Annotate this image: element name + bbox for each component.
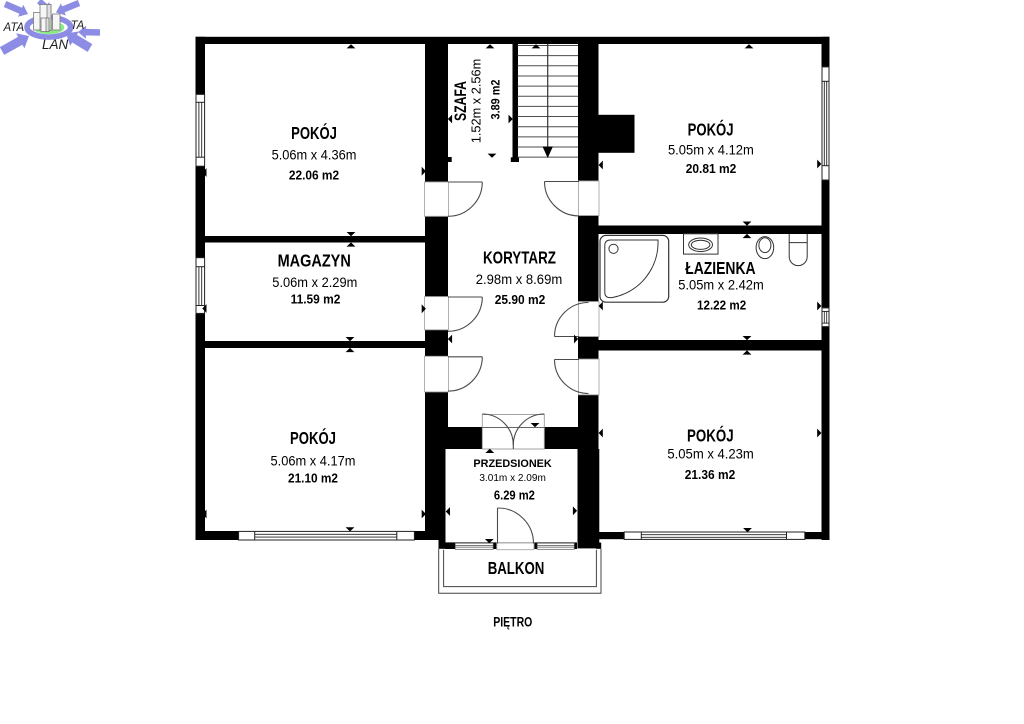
svg-text:5.05m x 4.12m: 5.05m x 4.12m	[668, 143, 754, 158]
svg-text:MAGAZYN: MAGAZYN	[278, 251, 351, 271]
svg-text:5.06m x 4.17m: 5.06m x 4.17m	[271, 453, 356, 468]
svg-text:5.06m x 4.36m: 5.06m x 4.36m	[272, 147, 357, 162]
svg-text:ŁAZIENKA: ŁAZIENKA	[685, 258, 756, 278]
svg-text:SZAFA: SZAFA	[451, 81, 470, 121]
svg-text:21.36 m2: 21.36 m2	[685, 467, 736, 482]
svg-text:6.29 m2: 6.29 m2	[494, 487, 535, 502]
svg-text:3.89 m2: 3.89 m2	[489, 79, 503, 119]
svg-text:LAN: LAN	[42, 37, 69, 52]
svg-text:5.05m x 4.23m: 5.05m x 4.23m	[667, 446, 753, 461]
svg-text:12.22 m2: 12.22 m2	[697, 297, 746, 312]
svg-text:PIĘTRO: PIĘTRO	[493, 613, 532, 629]
svg-text:POKÓJ: POKÓJ	[290, 427, 336, 448]
svg-text:2.98m x 8.69m: 2.98m x 8.69m	[476, 272, 563, 287]
svg-text:1.52m x 2.56m: 1.52m x 2.56m	[468, 59, 483, 144]
svg-text:PRZEDSIONEK: PRZEDSIONEK	[473, 458, 551, 470]
svg-text:TA: TA	[71, 20, 85, 32]
svg-text:25.90 m2: 25.90 m2	[495, 292, 546, 307]
svg-text:3.01m x 2.09m: 3.01m x 2.09m	[479, 473, 546, 484]
svg-text:ATA: ATA	[3, 22, 25, 34]
svg-text:POKÓJ: POKÓJ	[688, 119, 734, 140]
svg-text:POKÓJ: POKÓJ	[291, 122, 337, 143]
svg-text:5.05m x 2.42m: 5.05m x 2.42m	[678, 277, 764, 292]
svg-text:11.59 m2: 11.59 m2	[291, 292, 341, 307]
svg-text:POKÓJ: POKÓJ	[687, 425, 734, 446]
svg-text:KORYTARZ: KORYTARZ	[483, 248, 556, 268]
svg-text:20.81 m2: 20.81 m2	[686, 161, 737, 176]
svg-text:22.06 m2: 22.06 m2	[289, 168, 339, 183]
svg-text:BALKON: BALKON	[488, 558, 545, 578]
svg-text:21.10 m2: 21.10 m2	[288, 471, 338, 486]
svg-text:5.06m x 2.29m: 5.06m x 2.29m	[272, 275, 357, 290]
